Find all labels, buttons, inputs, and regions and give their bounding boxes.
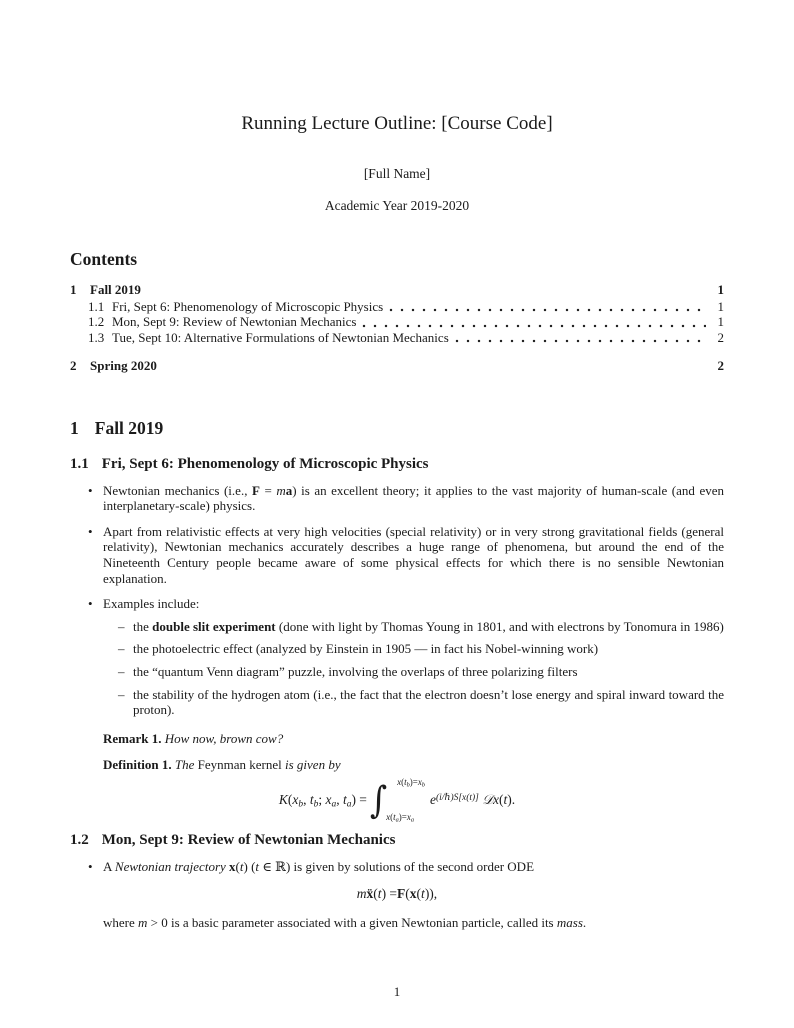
- integral-limits: x(tb)=xb x(ta)=xa: [388, 777, 425, 823]
- toc-entry-label: Mon, Sept 9: Review of Newtonian Mechani…: [112, 314, 356, 330]
- remark-1: Remark 1. How now, brown cow?: [103, 731, 724, 747]
- subsection-title: Fri, Sept 6: Phenomenology of Microscopi…: [102, 456, 429, 472]
- bullet-newtonian-trajectory: A Newtonian trajectory x(t) (t ∈ ℝ) is g…: [70, 859, 724, 875]
- formula-rhs: e(i/ℏ)S[x(t)] 𝒟x(t).: [430, 792, 515, 808]
- toc-entry-number: 1: [70, 282, 90, 298]
- bullet-newtonian-mechanics: Newtonian mechanics (i.e., F = ma) is an…: [70, 483, 724, 514]
- contents-heading: Contents: [70, 249, 724, 270]
- toc-entry-number: 1.1: [88, 299, 112, 315]
- toc-entry-label: Tue, Sept 10: Alternative Formulations o…: [112, 330, 449, 346]
- toc-entry-page: 2: [712, 358, 724, 374]
- bullet-relativistic-effects: Apart from relativistic effects at very …: [70, 524, 724, 586]
- integral-lower-limit: x(ta)=xa: [386, 812, 425, 823]
- subsection-number: 1.2: [70, 832, 89, 848]
- newton-ode-formula: m ẍ(t) = F(x(t)),: [70, 885, 724, 903]
- toc-dot-leader: [389, 308, 706, 312]
- subsection-heading-1-1: 1.1Fri, Sept 6: Phenomenology of Microsc…: [70, 455, 724, 473]
- subsection-heading-1-2: 1.2Mon, Sept 9: Review of Newtonian Mech…: [70, 831, 724, 849]
- definition-1: Definition 1. The Feynman kernel is give…: [103, 757, 724, 773]
- toc-entry-number: 1.3: [88, 330, 112, 346]
- integral: ∫ x(tb)=xb x(ta)=xa: [370, 777, 425, 823]
- formula-lhs: K(xb, tb; xa, ta) =: [279, 792, 367, 808]
- sub-bullet-quantum-venn: the “quantum Venn diagram” puzzle, invol…: [70, 664, 724, 680]
- toc-entry-label: Fri, Sept 6: Phenomenology of Microscopi…: [112, 299, 383, 315]
- section-title: Fall 2019: [95, 418, 164, 438]
- table-of-contents: 1 Fall 2019 1 1.1 Fri, Sept 6: Phenomeno…: [70, 282, 724, 374]
- sub-bullet-hydrogen-atom: the stability of the hydrogen atom (i.e.…: [70, 687, 724, 718]
- toc-entry-label: Fall 2019: [90, 282, 141, 298]
- document-page: Running Lecture Outline: [Course Code] […: [0, 0, 794, 1028]
- toc-entry-subsection-1-2[interactable]: 1.2 Mon, Sept 9: Review of Newtonian Mec…: [70, 314, 724, 330]
- section-number: 1: [70, 418, 79, 438]
- sub-bullet-photoelectric: the photoelectric effect (analyzed by Ei…: [70, 641, 724, 657]
- toc-dot-leader: [455, 339, 706, 343]
- page-content: Running Lecture Outline: [Course Code] […: [0, 0, 794, 930]
- doc-date: Academic Year 2019-2020: [70, 198, 724, 214]
- toc-entry-page: 1: [712, 314, 724, 330]
- toc-dot-leader: [362, 324, 706, 328]
- toc-entry-number: 2: [70, 358, 90, 374]
- subsection-number: 1.1: [70, 456, 89, 472]
- integral-upper-limit: x(tb)=xb: [397, 777, 425, 788]
- toc-entry-page: 1: [712, 299, 724, 315]
- toc-entry-page: 2: [712, 330, 724, 346]
- toc-entry-number: 1.2: [88, 314, 112, 330]
- section-heading-fall-2019: 1Fall 2019: [70, 418, 724, 439]
- where-mass-line: where m > 0 is a basic parameter associa…: [103, 915, 724, 931]
- feynman-kernel-formula: K(xb, tb; xa, ta) = ∫ x(tb)=xb x(ta)=xa …: [70, 777, 724, 823]
- toc-entry-subsection-1-1[interactable]: 1.1 Fri, Sept 6: Phenomenology of Micros…: [70, 299, 724, 315]
- sub-bullet-double-slit: the double slit experiment (done with li…: [70, 619, 724, 635]
- integral-sign: ∫: [370, 774, 387, 826]
- subsection-title: Mon, Sept 9: Review of Newtonian Mechani…: [102, 832, 396, 848]
- toc-entry-section-1[interactable]: 1 Fall 2019 1: [70, 282, 724, 298]
- toc-entry-subsection-1-3[interactable]: 1.3 Tue, Sept 10: Alternative Formulatio…: [70, 330, 724, 346]
- doc-title: Running Lecture Outline: [Course Code]: [70, 112, 724, 136]
- doc-author: [Full Name]: [70, 166, 724, 182]
- toc-entry-page: 1: [712, 282, 724, 298]
- page-number: 1: [0, 984, 794, 1000]
- toc-entry-label: Spring 2020: [90, 358, 157, 374]
- bullet-examples-include: Examples include:: [70, 596, 724, 612]
- toc-entry-section-2[interactable]: 2 Spring 2020 2: [70, 358, 724, 374]
